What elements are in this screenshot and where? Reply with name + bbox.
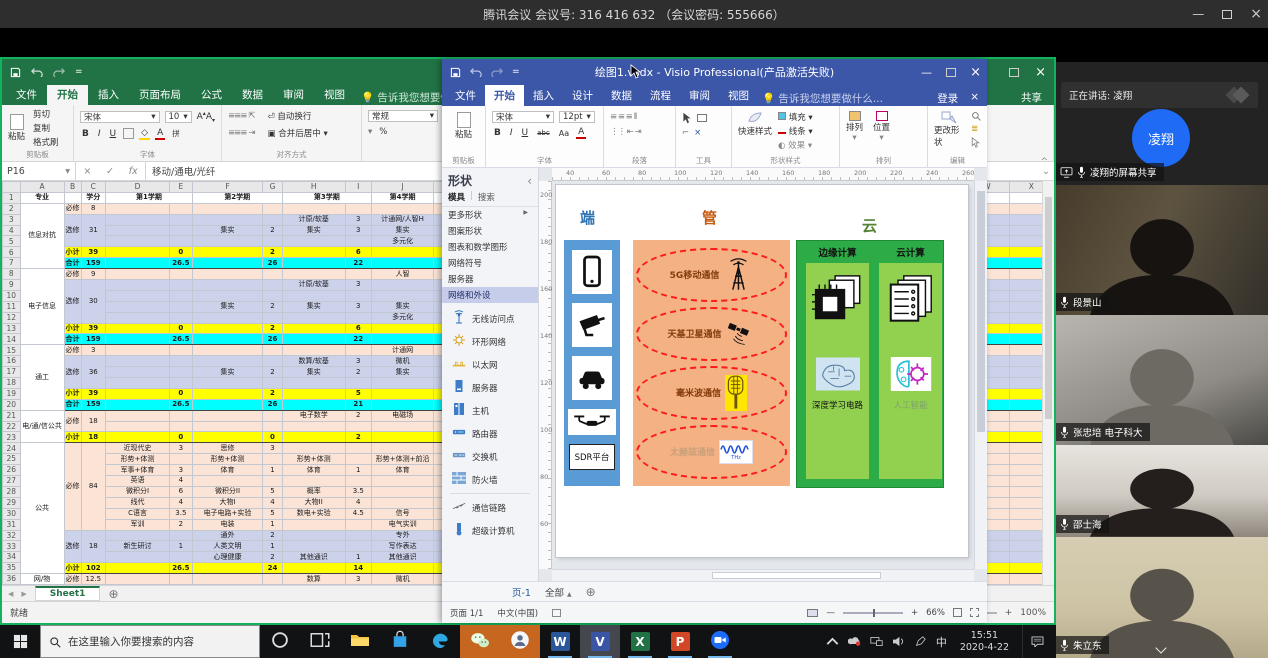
cell-J32[interactable]: 专外 xyxy=(371,530,434,541)
cell-D3[interactable] xyxy=(106,214,170,225)
shape-item-服务器[interactable]: 服务器 xyxy=(442,376,538,399)
zoom-out-icon[interactable]: — xyxy=(826,608,835,618)
cell-E32[interactable] xyxy=(169,530,192,541)
cell-J18[interactable] xyxy=(371,378,434,389)
cell-F7[interactable] xyxy=(192,258,262,269)
cell-E2[interactable] xyxy=(169,203,192,214)
cell-I3[interactable]: 3 xyxy=(345,214,371,225)
cell-F6[interactable] xyxy=(192,247,262,258)
cell-C6[interactable]: 39 xyxy=(81,247,106,258)
cell-I27[interactable] xyxy=(345,476,371,487)
taskbar-icon-task-view[interactable] xyxy=(300,625,340,658)
cell-F24[interactable]: 思修 xyxy=(192,443,262,454)
cell-H26[interactable]: 体育 xyxy=(282,465,345,476)
tab-流程[interactable]: 流程 xyxy=(641,85,680,106)
cell-E21[interactable] xyxy=(169,410,192,421)
row-header-13[interactable]: 13 xyxy=(3,323,21,334)
taskbar-icon-file-explorer[interactable] xyxy=(340,625,380,658)
cell-B36[interactable]: 必修 xyxy=(64,574,81,585)
cell-H34[interactable]: 其他通识 xyxy=(282,552,345,563)
cell-E30[interactable]: 3.5 xyxy=(169,508,192,519)
row-header-30[interactable]: 30 xyxy=(3,508,21,519)
cell-E15[interactable] xyxy=(169,345,192,356)
row-header-29[interactable]: 29 xyxy=(3,497,21,508)
cell-G18[interactable] xyxy=(263,378,282,389)
cell-D29[interactable]: 线代 xyxy=(106,497,170,508)
cell-C35[interactable]: 102 xyxy=(81,563,106,574)
notification-center-icon[interactable] xyxy=(1022,625,1052,658)
tab-文件[interactable]: 文件 xyxy=(446,85,485,106)
format-painter-button[interactable]: 格式刷 xyxy=(33,136,59,148)
add-sheet-icon[interactable]: ⊕ xyxy=(108,587,118,601)
tab-插入[interactable]: 插入 xyxy=(88,84,129,105)
column-header-E[interactable]: E xyxy=(169,182,192,193)
cell-G32[interactable]: 2 xyxy=(263,530,282,541)
taskbar-icon-wechat[interactable] xyxy=(460,625,500,658)
row-header-3[interactable]: 3 xyxy=(3,214,21,225)
cell-J14[interactable] xyxy=(371,334,434,345)
row-header-31[interactable]: 31 xyxy=(3,519,21,530)
cell-J7[interactable] xyxy=(371,258,434,269)
save-icon[interactable] xyxy=(10,67,21,78)
cell-E14[interactable]: 26.5 xyxy=(169,334,192,345)
cell-E12[interactable] xyxy=(169,312,192,323)
cell-F17[interactable]: 集实 xyxy=(192,367,262,378)
cell-F23[interactable] xyxy=(192,432,262,443)
canvas-vertical-scrollbar[interactable] xyxy=(974,181,987,569)
macro-record-icon[interactable] xyxy=(552,609,561,617)
shape-item-通信链路[interactable]: 通信链路 xyxy=(442,496,538,519)
cell-F29[interactable]: 大物I xyxy=(192,497,262,508)
more-shapes-item[interactable]: 更多形状 ▶ xyxy=(442,207,538,223)
row-header-27[interactable]: 27 xyxy=(3,476,21,487)
cell-F11[interactable]: 集实 xyxy=(192,301,262,312)
cell-H11[interactable]: 集实 xyxy=(282,301,345,312)
formula-ok-icon[interactable]: ✓ xyxy=(106,166,114,177)
cell-G23[interactable]: 0 xyxy=(263,432,282,443)
cell-J21[interactable]: 电磁场 xyxy=(371,410,434,421)
cell-G22[interactable] xyxy=(263,421,282,432)
cell-J4[interactable]: 集实 xyxy=(371,225,434,236)
cell-E11[interactable] xyxy=(169,301,192,312)
shape-item-无线访问点[interactable]: 无线访问点 xyxy=(442,307,538,330)
cell-D14[interactable] xyxy=(106,334,170,345)
cell-D8[interactable] xyxy=(106,269,170,280)
car-icon[interactable] xyxy=(572,356,612,400)
cell-D26[interactable]: 军事+体育 xyxy=(106,465,170,476)
cell-G28[interactable]: 5 xyxy=(263,486,282,497)
tab-审阅[interactable]: 审阅 xyxy=(680,85,719,106)
cell-H14[interactable] xyxy=(282,334,345,345)
taskbar-icon-tencent-meeting-alert[interactable] xyxy=(500,625,540,658)
cell-B23[interactable]: 小计 xyxy=(64,432,81,443)
cell-E28[interactable]: 6 xyxy=(169,486,192,497)
cell-G4[interactable]: 2 xyxy=(263,225,282,236)
stencil-item-图表和数学图形[interactable]: 图表和数学图形 xyxy=(442,239,538,255)
start-button[interactable] xyxy=(0,625,40,658)
cell-C8[interactable]: 9 xyxy=(81,269,106,280)
presentation-icon[interactable] xyxy=(807,609,818,617)
cell-H33[interactable] xyxy=(282,541,345,552)
cell-F3[interactable] xyxy=(192,214,262,225)
cell-D33[interactable]: 新生研讨 xyxy=(106,541,170,552)
cell-F13[interactable] xyxy=(192,323,262,334)
tab-设计[interactable]: 设计 xyxy=(563,85,602,106)
speaker-icon[interactable] xyxy=(892,636,905,647)
cell-G5[interactable] xyxy=(263,236,282,247)
line-button[interactable]: 线条 ▾ xyxy=(778,125,813,137)
tab-数据[interactable]: 数据 xyxy=(602,85,641,106)
cell-J30[interactable]: 信号 xyxy=(371,508,434,519)
cell-A8[interactable]: 电子信息 xyxy=(20,269,64,345)
cell-H18[interactable] xyxy=(282,378,345,389)
cell-F19[interactable] xyxy=(192,388,262,399)
row-header-33[interactable]: 33 xyxy=(3,541,21,552)
cell-I23[interactable]: 2 xyxy=(345,432,371,443)
cell-J15[interactable]: 计通网 xyxy=(371,345,434,356)
redo-icon[interactable] xyxy=(53,67,65,77)
cell-I34[interactable]: 1 xyxy=(345,552,371,563)
cell-I12[interactable] xyxy=(345,312,371,323)
cell-D27[interactable]: 英语 xyxy=(106,476,170,487)
cell-F10[interactable] xyxy=(192,290,262,301)
cell-D31[interactable]: 军训 xyxy=(106,519,170,530)
cell-D13[interactable] xyxy=(106,323,170,334)
cell-H20[interactable] xyxy=(282,399,345,410)
case-button[interactable]: Aa xyxy=(557,129,571,138)
cell-G9[interactable] xyxy=(263,280,282,291)
merge-center-button[interactable]: ▣ 合并后居中 ▾ xyxy=(268,127,328,139)
paste-icon[interactable] xyxy=(457,112,471,128)
cell-H1[interactable]: 第3学期 xyxy=(282,192,371,203)
column-header-A[interactable]: A xyxy=(20,182,64,193)
cell-J27[interactable] xyxy=(371,476,434,487)
tell-me-assistant[interactable]: 💡 告诉我您想要做什么... xyxy=(762,91,883,106)
cell-G24[interactable]: 3 xyxy=(263,443,282,454)
cell-C19[interactable]: 39 xyxy=(81,388,106,399)
cell-C21[interactable]: 18 xyxy=(81,410,106,432)
cell-E25[interactable] xyxy=(169,454,192,465)
cell-E13[interactable]: 0 xyxy=(169,323,192,334)
cell-G26[interactable]: 1 xyxy=(263,465,282,476)
cell-J12[interactable]: 多元化 xyxy=(371,312,434,323)
row-header-4[interactable]: 4 xyxy=(3,225,21,236)
cell-G3[interactable] xyxy=(263,214,282,225)
cell-F15[interactable] xyxy=(192,345,262,356)
fit-page-icon[interactable] xyxy=(953,608,962,617)
row-header-5[interactable]: 5 xyxy=(3,236,21,247)
sdr-platform-box[interactable]: SDR平台 xyxy=(569,444,615,470)
cell-I9[interactable]: 3 xyxy=(345,280,371,291)
excel-zoom-level[interactable]: 100% xyxy=(1020,608,1046,618)
select-icon[interactable] xyxy=(971,137,980,148)
cell-F33[interactable]: 人类文明 xyxy=(192,541,262,552)
cell-D28[interactable]: 微积分I xyxy=(106,486,170,497)
excel-vertical-scrollbar[interactable] xyxy=(1042,181,1054,585)
cell-H17[interactable]: 集实 xyxy=(282,367,345,378)
cell-J33[interactable]: 写作表达 xyxy=(371,541,434,552)
row-header-25[interactable]: 25 xyxy=(3,454,21,465)
cell-I2[interactable] xyxy=(345,203,371,214)
link-ellipse-5G移动通信[interactable]: 5G移动通信 xyxy=(636,248,787,302)
cell-A2[interactable]: 信息对抗 xyxy=(20,203,64,268)
visio-zoom-level[interactable]: 66% xyxy=(926,608,945,618)
cell-E16[interactable] xyxy=(169,356,192,367)
network-display-icon[interactable] xyxy=(870,636,883,647)
cell-I36[interactable]: 3 xyxy=(345,574,371,585)
cell-I13[interactable]: 6 xyxy=(345,323,371,334)
taskbar-icon-word[interactable]: W xyxy=(540,625,580,658)
cell-I16[interactable]: 3 xyxy=(345,356,371,367)
cell-J20[interactable] xyxy=(371,399,434,410)
cell-J25[interactable]: 形势+体测+前沿 xyxy=(371,454,434,465)
find-icon[interactable] xyxy=(971,111,981,121)
cell-J36[interactable]: 微机 xyxy=(371,574,434,585)
row-header-12[interactable]: 12 xyxy=(3,312,21,323)
visio-minimize-button[interactable]: — xyxy=(921,66,932,79)
select-all-corner[interactable] xyxy=(3,182,21,193)
cell-H32[interactable] xyxy=(282,530,345,541)
font-color-icon[interactable]: A xyxy=(576,127,586,139)
cell-I30[interactable]: 4.5 xyxy=(345,508,371,519)
cell-F36[interactable] xyxy=(192,574,262,585)
cell-D18[interactable] xyxy=(106,378,170,389)
borders-icon[interactable] xyxy=(123,128,134,139)
tray-chevron-up-icon[interactable] xyxy=(826,636,839,647)
cell-H12[interactable] xyxy=(282,312,345,323)
cell-J10[interactable] xyxy=(371,290,434,301)
cell-E27[interactable]: 4 xyxy=(169,476,192,487)
font-name-select[interactable]: 宋体▾ xyxy=(492,111,554,123)
cell-E23[interactable]: 0 xyxy=(169,432,192,443)
cell-D17[interactable] xyxy=(106,367,170,378)
tab-插入[interactable]: 插入 xyxy=(524,85,563,106)
cell-G21[interactable] xyxy=(263,410,282,421)
cell-I33[interactable] xyxy=(345,541,371,552)
cell-C7[interactable]: 159 xyxy=(81,258,106,269)
cell-D25[interactable]: 形势+体测 xyxy=(106,454,170,465)
cell-B24[interactable]: 必修 xyxy=(64,443,81,530)
cell-G14[interactable]: 26 xyxy=(263,334,282,345)
cell-H16[interactable]: 数算/软基 xyxy=(282,356,345,367)
cell-G10[interactable] xyxy=(263,290,282,301)
cell-J5[interactable]: 多元化 xyxy=(371,236,434,247)
pointer-tool-icon[interactable] xyxy=(682,112,692,124)
visio-language[interactable]: 中文(中国) xyxy=(497,607,538,619)
cell-E34[interactable] xyxy=(169,552,192,563)
column-header-B[interactable]: B xyxy=(64,182,81,193)
cell-E19[interactable]: 0 xyxy=(169,388,192,399)
cell-C9[interactable]: 30 xyxy=(81,280,106,324)
visio-canvas[interactable]: 406080100120140160180200220240260 200180… xyxy=(539,168,987,581)
search-tab[interactable]: 搜索 xyxy=(478,191,495,203)
tab-数据[interactable]: 数据 xyxy=(232,84,273,105)
cell-J17[interactable]: 集实 xyxy=(371,367,434,378)
cell-F20[interactable] xyxy=(192,399,262,410)
cell-D4[interactable] xyxy=(106,225,170,236)
phone-icon[interactable] xyxy=(572,250,612,294)
cell-E24[interactable]: 3 xyxy=(169,443,192,454)
cell-E10[interactable] xyxy=(169,290,192,301)
cell-B35[interactable]: 小计 xyxy=(64,563,81,574)
taskbar-icon-powerpoint[interactable]: P xyxy=(660,625,700,658)
cell-B16[interactable]: 选修 xyxy=(64,356,81,389)
cell-C24[interactable]: 84 xyxy=(81,443,106,530)
delete-tool-icon[interactable]: × xyxy=(694,128,701,138)
formula-cancel-icon[interactable]: × xyxy=(83,166,91,177)
connector-tool-icon[interactable]: ⌐ xyxy=(682,128,689,138)
cell-H25[interactable]: 形势+体测 xyxy=(282,454,345,465)
excel-share-button[interactable]: 共享 xyxy=(1021,90,1042,105)
cell-F1[interactable]: 第2学期 xyxy=(192,192,282,203)
cell-G33[interactable]: 1 xyxy=(263,541,282,552)
cell-I24[interactable] xyxy=(345,443,371,454)
cell-I26[interactable]: 1 xyxy=(345,465,371,476)
cell-J6[interactable] xyxy=(371,247,434,258)
cell-H29[interactable]: 大物II xyxy=(282,497,345,508)
tab-视图[interactable]: 视图 xyxy=(314,84,355,105)
cell-J3[interactable]: 计通网/人智H xyxy=(371,214,434,225)
row-header-11[interactable]: 11 xyxy=(3,301,21,312)
shape-item-主机[interactable]: 主机 xyxy=(442,399,538,422)
number-format-select[interactable]: 常规▾ xyxy=(368,110,438,122)
cell-E22[interactable] xyxy=(169,421,192,432)
cell-G27[interactable] xyxy=(263,476,282,487)
cell-I10[interactable] xyxy=(345,290,371,301)
link-ellipse-太赫兹通信[interactable]: 太赫兹通信THz xyxy=(636,425,787,479)
cell-D23[interactable] xyxy=(106,432,170,443)
tab-开始[interactable]: 开始 xyxy=(47,84,88,105)
cell-H9[interactable]: 计原/软基 xyxy=(282,280,345,291)
cell-D32[interactable] xyxy=(106,530,170,541)
cell-A15[interactable]: 通工 xyxy=(20,345,64,410)
cell-A1[interactable]: 专业 xyxy=(20,192,64,203)
cell-J13[interactable] xyxy=(371,323,434,334)
row-header-16[interactable]: 16 xyxy=(3,356,21,367)
cell-G16[interactable] xyxy=(263,356,282,367)
cell-J19[interactable] xyxy=(371,388,434,399)
taskbar-icon-visio[interactable]: V xyxy=(580,625,620,658)
cell-I18[interactable] xyxy=(345,378,371,389)
cell-I15[interactable] xyxy=(345,345,371,356)
cell-E6[interactable]: 0 xyxy=(169,247,192,258)
fill-button[interactable]: 填充 ▾ xyxy=(778,111,813,123)
row-header-22[interactable]: 22 xyxy=(3,421,21,432)
cell-H19[interactable] xyxy=(282,388,345,399)
visio-close-button[interactable]: × xyxy=(970,65,981,80)
cell-C13[interactable]: 39 xyxy=(81,323,106,334)
cell-D22[interactable] xyxy=(106,421,170,432)
row-header-24[interactable]: 24 xyxy=(3,443,21,454)
cell-D35[interactable] xyxy=(106,563,170,574)
cell-C20[interactable]: 159 xyxy=(81,399,106,410)
cell-name-box[interactable]: P16▾ xyxy=(2,162,76,180)
cell-E17[interactable] xyxy=(169,367,192,378)
cell-D15[interactable] xyxy=(106,345,170,356)
ribbon-collapse-icon[interactable]: ^ xyxy=(1040,157,1048,167)
cell-B6[interactable]: 小计 xyxy=(64,247,81,258)
cell-I22[interactable] xyxy=(345,421,371,432)
cell-E31[interactable]: 2 xyxy=(169,519,192,530)
cell-B19[interactable]: 小计 xyxy=(64,388,81,399)
cell-G19[interactable]: 2 xyxy=(263,388,282,399)
cell-H31[interactable] xyxy=(282,519,345,530)
stencil-item-图案形状[interactable]: 图案形状 xyxy=(442,223,538,239)
minimize-button[interactable]: — xyxy=(1192,7,1204,21)
cell-D21[interactable] xyxy=(106,410,170,421)
cell-E4[interactable] xyxy=(169,225,192,236)
cell-F18[interactable] xyxy=(192,378,262,389)
row-header-1[interactable]: 1 xyxy=(3,192,21,203)
cell-D1[interactable]: 第1学期 xyxy=(106,192,193,203)
cell-B20[interactable]: 合计 xyxy=(64,399,81,410)
cell-G34[interactable]: 2 xyxy=(263,552,282,563)
cell-C16[interactable]: 36 xyxy=(81,356,106,389)
cell-D7[interactable] xyxy=(106,258,170,269)
row-header-15[interactable]: 15 xyxy=(3,345,21,356)
maximize-button[interactable] xyxy=(1222,10,1232,19)
cell-H28[interactable]: 概率 xyxy=(282,486,345,497)
cell-J31[interactable]: 电气实训 xyxy=(371,519,434,530)
cell-H36[interactable]: 数算 xyxy=(282,574,345,585)
cell-F35[interactable] xyxy=(192,563,262,574)
font-color-icon[interactable]: A xyxy=(155,128,165,140)
tab-审阅[interactable]: 审阅 xyxy=(273,84,314,105)
italic-button[interactable]: I xyxy=(508,128,515,138)
drone-icon[interactable] xyxy=(568,409,616,435)
cell-E29[interactable]: 4 xyxy=(169,497,192,508)
row-header-19[interactable]: 19 xyxy=(3,388,21,399)
cloud-col-云计算[interactable]: 人工智能 xyxy=(879,263,942,479)
cell-F26[interactable]: 体育 xyxy=(192,465,262,476)
shape-item-超级计算机[interactable]: 超级计算机 xyxy=(442,519,538,542)
cell-H8[interactable] xyxy=(282,269,345,280)
row-header-32[interactable]: 32 xyxy=(3,530,21,541)
row-header-34[interactable]: 34 xyxy=(3,552,21,563)
tab-视图[interactable]: 视图 xyxy=(719,85,758,106)
pen-ink-icon[interactable] xyxy=(914,636,927,647)
cell-I31[interactable] xyxy=(345,519,371,530)
cell-E20[interactable]: 26.5 xyxy=(169,399,192,410)
cell-B14[interactable]: 合计 xyxy=(64,334,81,345)
cell-B8[interactable]: 必修 xyxy=(64,269,81,280)
shape-item-路由器[interactable]: 路由器 xyxy=(442,422,538,445)
close-button[interactable]: × xyxy=(1250,6,1262,22)
cell-J8[interactable]: 人智 xyxy=(371,269,434,280)
cell-J35[interactable] xyxy=(371,563,434,574)
taskbar-clock[interactable]: 15:51 2020-4-22 xyxy=(956,630,1013,654)
cell-F25[interactable]: 形势+体测 xyxy=(192,454,262,465)
cloud-column[interactable]: 边缘计算深度学习电路云计算人工智能 xyxy=(796,240,944,488)
cell-D12[interactable] xyxy=(106,312,170,323)
cell-H13[interactable] xyxy=(282,323,345,334)
paste-button[interactable]: 粘贴 xyxy=(8,130,25,142)
cell-G8[interactable] xyxy=(263,269,282,280)
cell-J2[interactable] xyxy=(371,203,434,214)
cell-F28[interactable]: 微积分II xyxy=(192,486,262,497)
cell-I19[interactable]: 5 xyxy=(345,388,371,399)
cell-G30[interactable]: 5 xyxy=(263,508,282,519)
cell-B2[interactable]: 必修 xyxy=(64,203,81,214)
cell-H6[interactable] xyxy=(282,247,345,258)
cell-D24[interactable]: 近现代史 xyxy=(106,443,170,454)
video-tile-朱立东[interactable]: 朱立东 xyxy=(1056,537,1268,658)
cell-D20[interactable] xyxy=(106,399,170,410)
cell-I32[interactable] xyxy=(345,530,371,541)
cell-E26[interactable]: 3 xyxy=(169,465,192,476)
chevron-down-icon[interactable] xyxy=(1157,644,1167,654)
cell-I28[interactable]: 3.5 xyxy=(345,486,371,497)
